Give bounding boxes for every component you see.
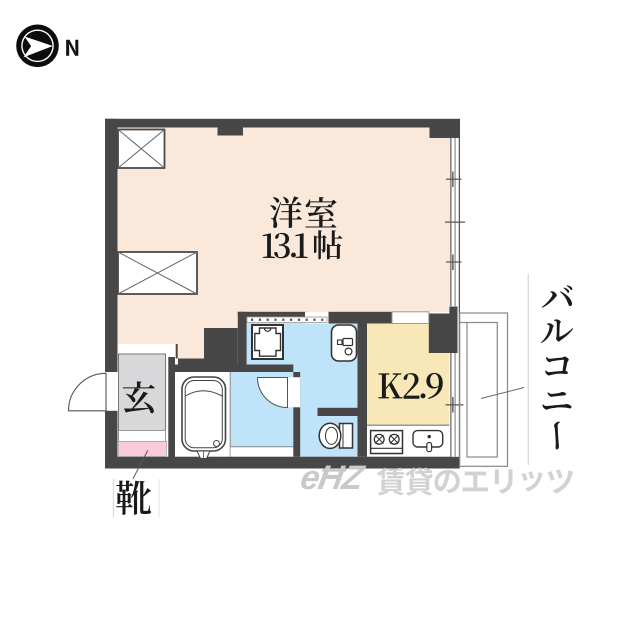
svg-text:eĦZ: eĦZ [298,459,368,497]
